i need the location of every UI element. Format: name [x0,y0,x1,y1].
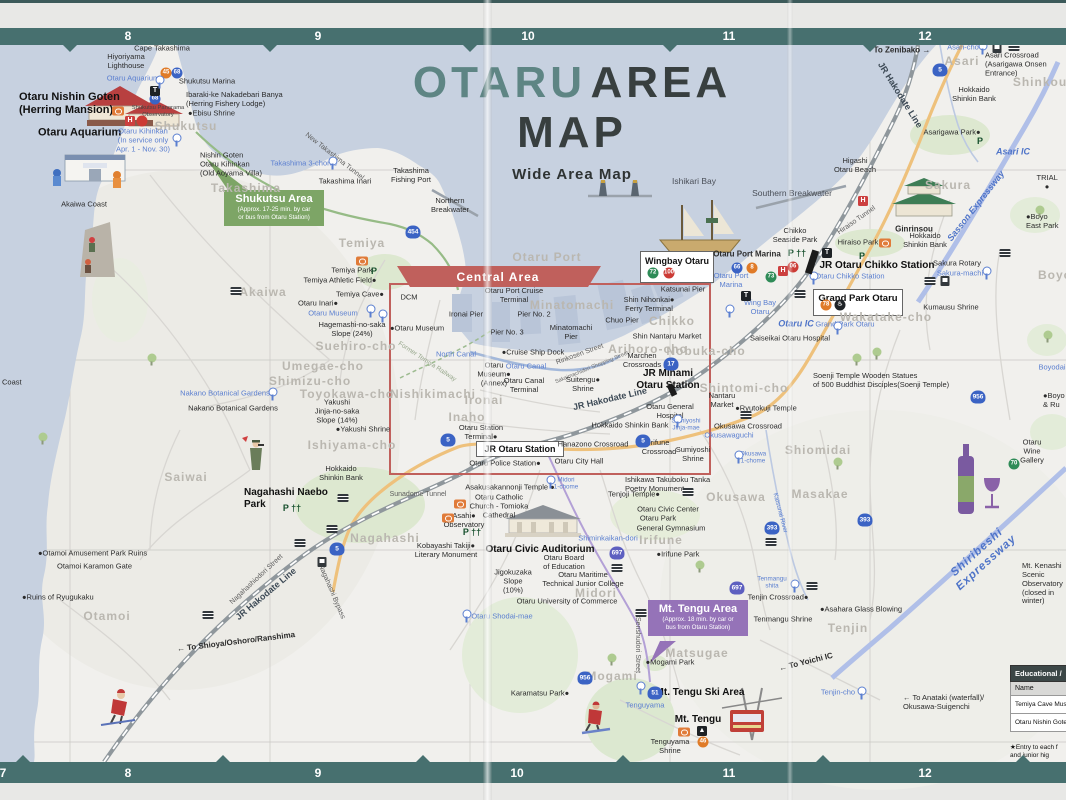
edu-table-row: Otaru Nishin Goten [1010,714,1066,732]
educational-facilities-table: Educational / Name Temiya Cave Museum Ot… [1010,665,1066,732]
climber-illustration [80,222,115,277]
central-area-banner [397,266,601,287]
map-title: OTARU AREA MAP Wide Area Map [362,58,782,183]
map-title-otaru: OTARU [413,58,586,107]
map-subtitle: Wide Area Map [362,166,782,183]
edu-table-row: Temiya Cave Museum [1010,696,1066,714]
edu-table-header: Educational / [1010,665,1066,682]
edu-table-footnote: ★Entry to each f and junior hig [1010,744,1066,761]
otaru-area-map-page: OTARU AREA MAP Wide Area Map Central Are… [0,0,1066,800]
edu-table-name-column: Name [1010,682,1066,696]
